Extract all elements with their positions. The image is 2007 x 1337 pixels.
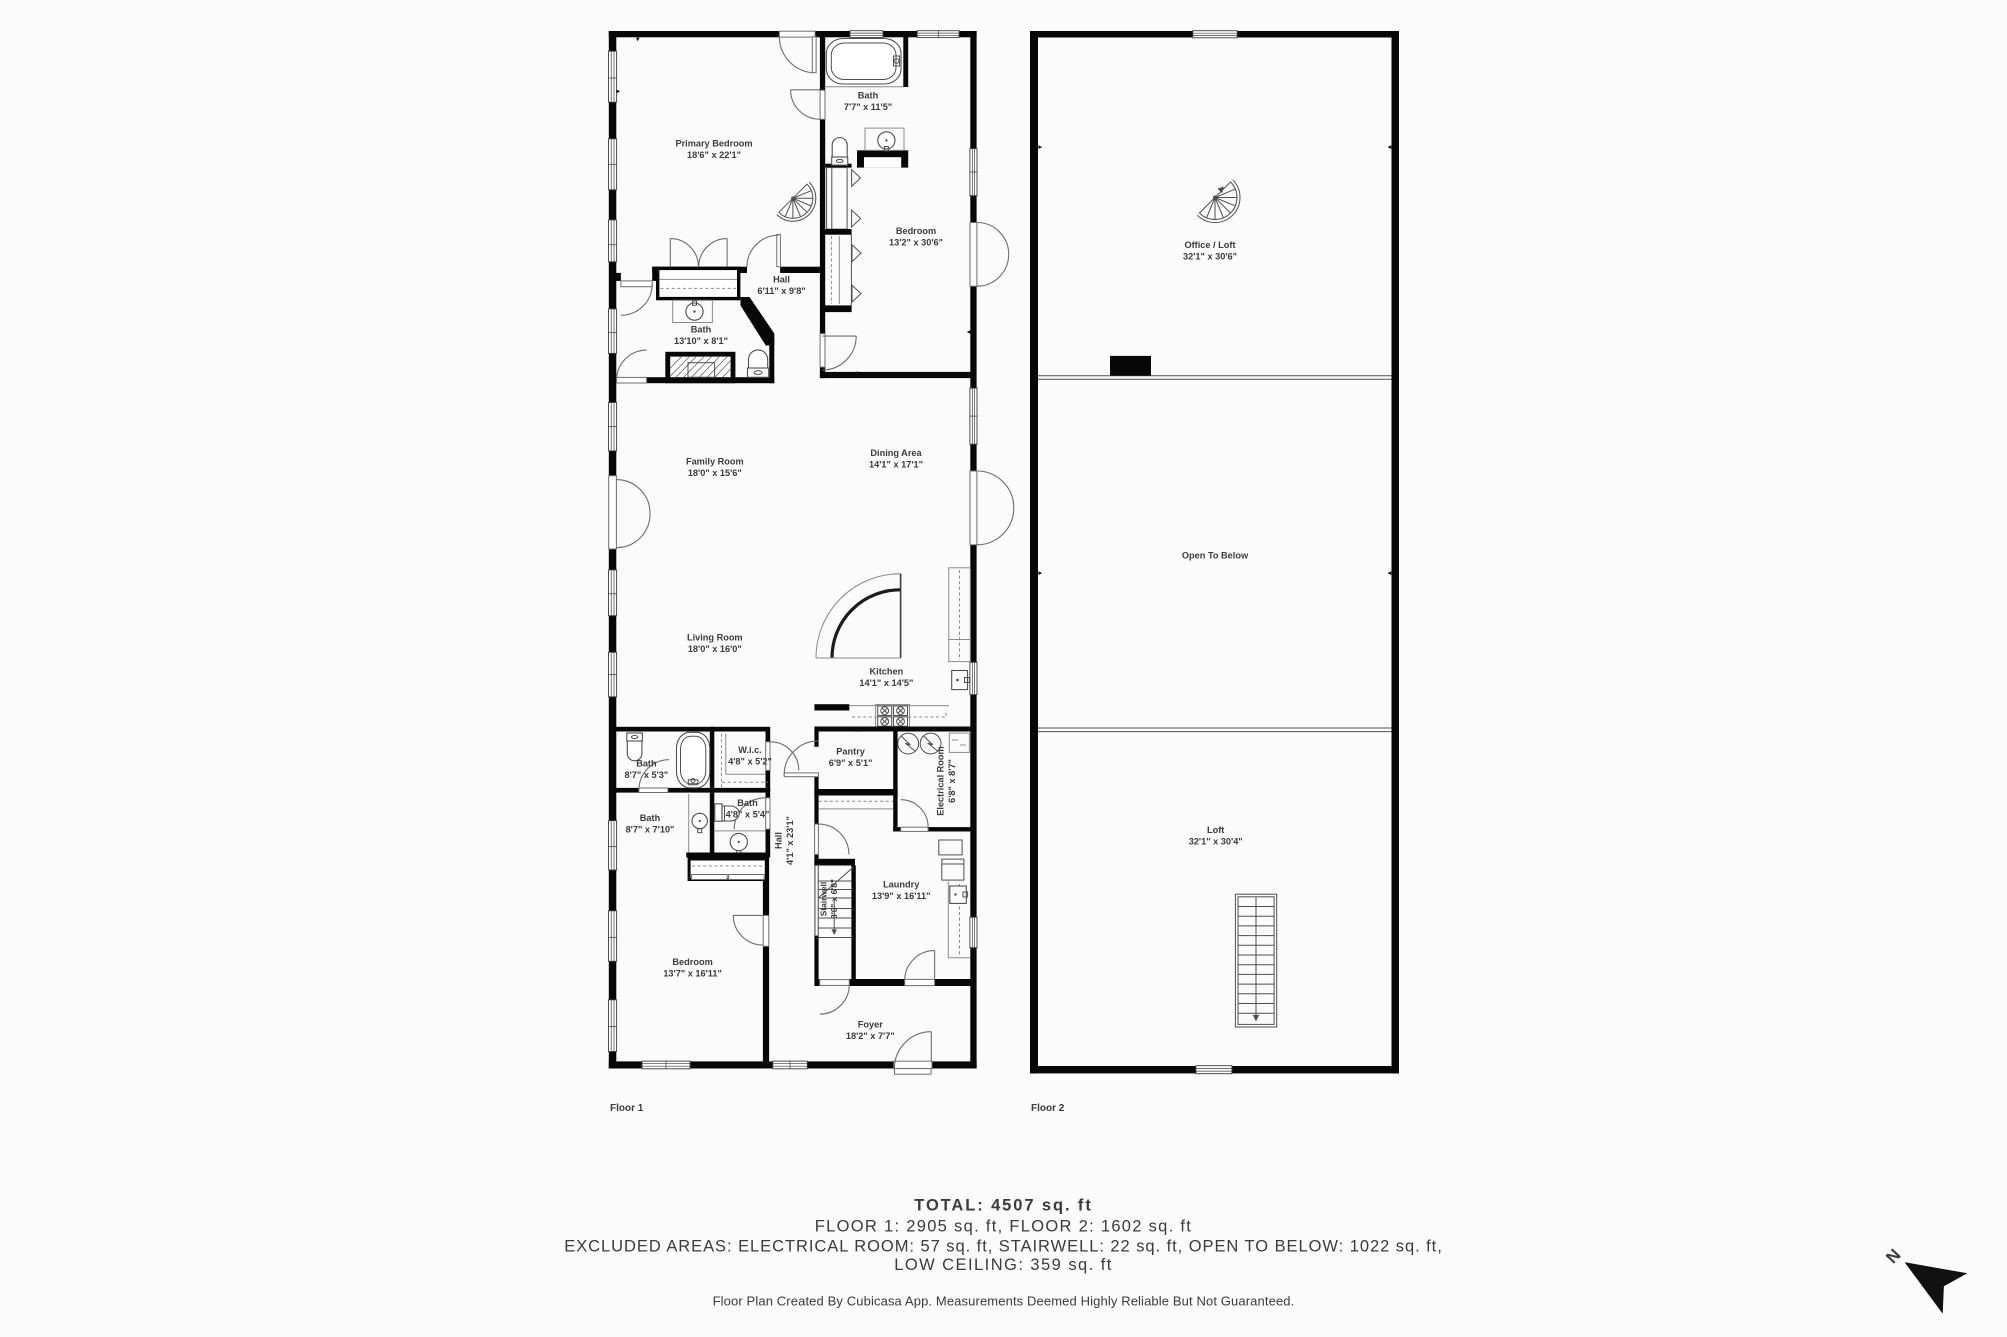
svg-text:13'7" x 16'11": 13'7" x 16'11" — [663, 969, 722, 979]
svg-text:13'2" x 30'6": 13'2" x 30'6" — [889, 238, 943, 248]
svg-text:13'9" x 16'11": 13'9" x 16'11" — [872, 891, 931, 901]
svg-text:Hall: Hall — [774, 832, 784, 849]
svg-text:14'1" x 14'5": 14'1" x 14'5" — [859, 678, 913, 688]
svg-text:EXCLUDED AREAS: ELECTRICAL ROO: EXCLUDED AREAS: ELECTRICAL ROOM: 57 sq. … — [564, 1238, 1443, 1256]
svg-text:Primary Bedroom: Primary Bedroom — [675, 139, 752, 149]
svg-text:8'7" x 7'10": 8'7" x 7'10" — [626, 825, 675, 835]
svg-text:W.i.c.: W.i.c. — [738, 745, 761, 755]
svg-text:Foyer: Foyer — [858, 1020, 883, 1030]
svg-text:Floor Plan Created By Cubicasa: Floor Plan Created By Cubicasa App. Meas… — [713, 1294, 1295, 1309]
svg-text:Floor 1: Floor 1 — [610, 1103, 644, 1114]
svg-text:7'7" x 11'5": 7'7" x 11'5" — [844, 102, 892, 112]
svg-text:Loft: Loft — [1207, 825, 1224, 835]
svg-text:Living Room: Living Room — [687, 633, 743, 643]
svg-text:4'1" x 23'1": 4'1" x 23'1" — [785, 816, 795, 865]
svg-text:Stairwell: Stairwell — [819, 882, 829, 916]
svg-text:13'10" x 8'1": 13'10" x 8'1" — [674, 336, 728, 346]
svg-text:Bath: Bath — [691, 325, 712, 335]
svg-text:14'1" x 17'1": 14'1" x 17'1" — [869, 460, 923, 470]
svg-text:4'8" x 5'2": 4'8" x 5'2" — [728, 757, 772, 767]
svg-text:32'1" x 30'6": 32'1" x 30'6" — [1183, 252, 1237, 262]
svg-text:Electrical Room: Electrical Room — [936, 746, 946, 815]
svg-text:32'1" x 30'4": 32'1" x 30'4" — [1189, 837, 1243, 847]
svg-text:FLOOR 1: 2905 sq. ft, FLOOR 2:: FLOOR 1: 2905 sq. ft, FLOOR 2: 1602 sq. … — [815, 1218, 1192, 1236]
svg-text:4'8" x 5'4": 4'8" x 5'4" — [726, 810, 770, 820]
svg-text:18'0" x 16'0": 18'0" x 16'0" — [688, 644, 742, 654]
svg-text:Hall: Hall — [773, 275, 790, 285]
svg-text:Office / Loft: Office / Loft — [1184, 240, 1235, 250]
svg-text:Family Room: Family Room — [686, 457, 744, 467]
svg-text:Bath: Bath — [636, 759, 657, 769]
svg-text:18'2" x 7'7": 18'2" x 7'7" — [846, 1031, 895, 1041]
svg-text:Open To Below: Open To Below — [1182, 551, 1249, 561]
svg-text:Laundry: Laundry — [883, 880, 920, 890]
svg-text:LOW CEILING: 359 sq. ft: LOW CEILING: 359 sq. ft — [894, 1256, 1113, 1274]
svg-text:6'8" x 8'7": 6'8" x 8'7" — [947, 759, 957, 803]
svg-text:Bedroom: Bedroom — [672, 957, 712, 967]
svg-text:Dining Area: Dining Area — [870, 448, 922, 458]
svg-text:Bath: Bath — [737, 798, 758, 808]
svg-text:18'0" x 15'6": 18'0" x 15'6" — [688, 468, 742, 478]
svg-text:Bedroom: Bedroom — [896, 226, 936, 236]
svg-text:Bath: Bath — [858, 91, 879, 101]
svg-text:18'6" x 22'1": 18'6" x 22'1" — [687, 150, 741, 160]
svg-text:Pantry: Pantry — [836, 747, 865, 757]
svg-text:6'11" x 9'8": 6'11" x 9'8" — [757, 286, 805, 296]
svg-text:3'0" x 6'8": 3'0" x 6'8" — [829, 879, 839, 919]
svg-text:8'7" x 5'3": 8'7" x 5'3" — [625, 770, 669, 780]
svg-text:Bath: Bath — [640, 813, 661, 823]
svg-text:Floor 2: Floor 2 — [1031, 1103, 1065, 1114]
svg-text:6'9" x 5'1": 6'9" x 5'1" — [829, 758, 873, 768]
svg-text:TOTAL: 4507 sq. ft: TOTAL: 4507 sq. ft — [914, 1197, 1092, 1215]
svg-text:Kitchen: Kitchen — [870, 667, 904, 677]
